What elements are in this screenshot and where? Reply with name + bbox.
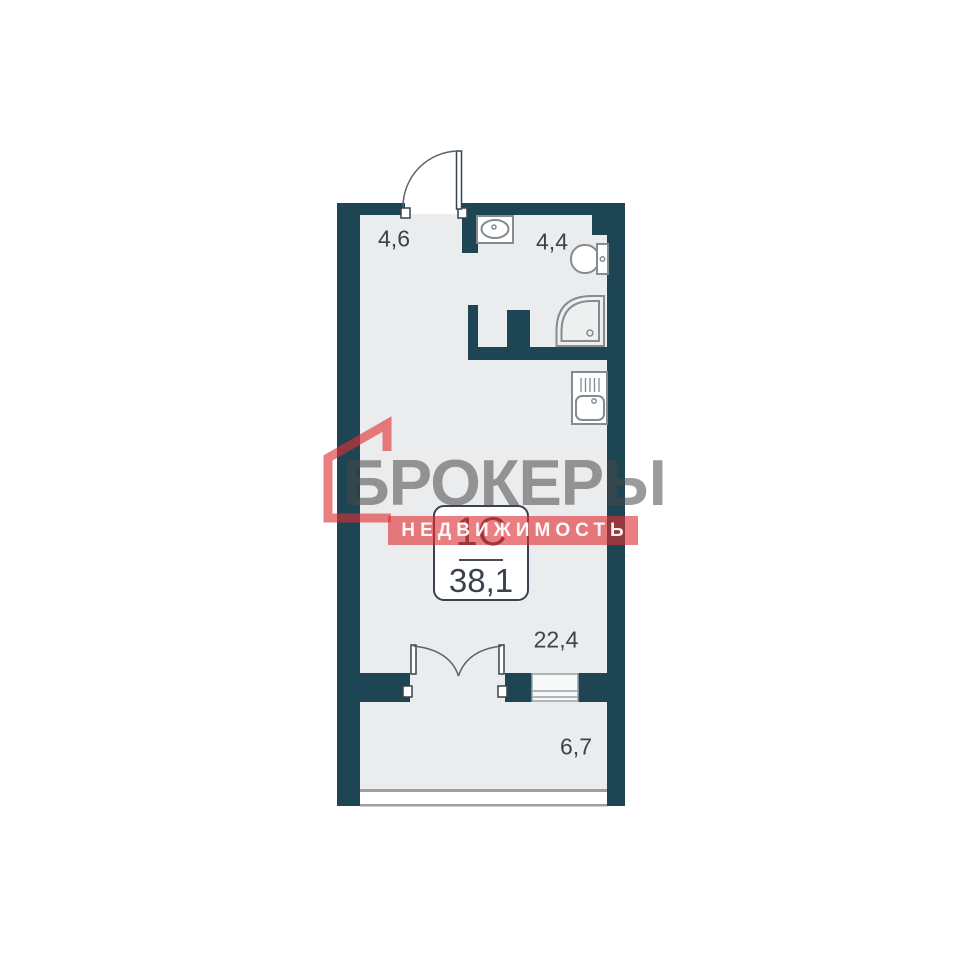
divider-window-icon (532, 674, 578, 701)
floor-plan-drawing (0, 0, 960, 960)
unit-type-label: 1С (435, 512, 527, 552)
corner-pier (592, 214, 608, 235)
wall-left (337, 203, 360, 806)
bathroom-bottom-wall (468, 347, 625, 360)
wall-top-right (462, 203, 625, 215)
bathroom-pier (507, 310, 530, 348)
balcony-divider-mid (505, 673, 532, 702)
room-area-living: 22,4 (534, 627, 579, 654)
unit-info-card: 1С 38,1 (433, 505, 529, 601)
unit-area-label: 38,1 (435, 566, 527, 596)
door-swing-icon (401, 151, 467, 218)
wall-top-left (337, 203, 405, 215)
bathroom-partition-vertical (468, 305, 478, 349)
wall-right (607, 203, 625, 806)
balcony-divider-left (355, 673, 410, 702)
room-area-balcony: 6,7 (560, 734, 592, 761)
sink-icon (477, 216, 513, 243)
room-area-hallway: 4,6 (378, 226, 410, 253)
balcony-divider-right (578, 673, 625, 702)
kitchen-sink-icon (572, 372, 607, 424)
toilet-icon (571, 244, 608, 274)
card-divider-line (459, 559, 503, 561)
room-area-bathroom: 4,4 (536, 229, 568, 256)
balcony-window-icon (360, 789, 607, 807)
bathroom-partition-upper (462, 214, 478, 253)
floor-plan-canvas: 4,6 4,4 22,4 6,7 1С 38,1 БРОКЕРЫ НЕДВИЖИ… (0, 0, 960, 960)
